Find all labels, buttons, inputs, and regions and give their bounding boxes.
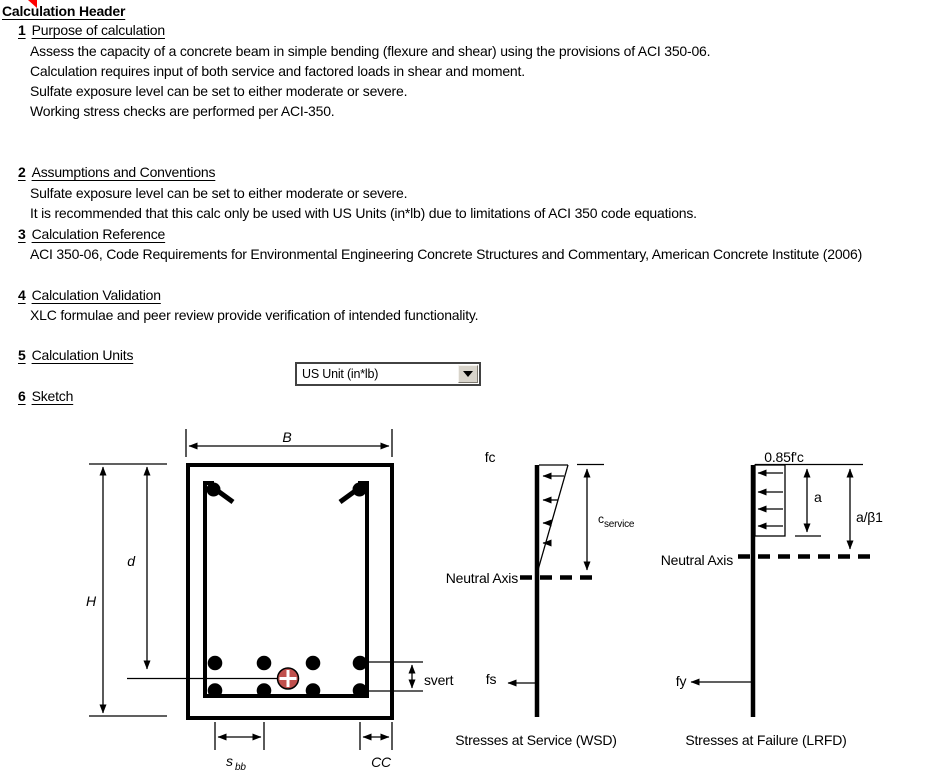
dim-label-sbb-base: s — [226, 753, 233, 769]
caption-wsd: Stresses at Service (WSD) — [455, 732, 616, 748]
top-rebar — [207, 483, 367, 497]
service-stress-diagram — [508, 465, 604, 718]
label-fc: fc — [485, 449, 496, 465]
label-a: a — [814, 489, 822, 505]
chevron-down-icon — [463, 371, 473, 377]
section-6-heading: 6 Sketch — [18, 388, 73, 404]
units-dropdown[interactable]: US Unit (in*lb) — [295, 362, 481, 386]
section-title: Purpose of calculation — [32, 22, 165, 38]
section-1-heading: 1 Purpose of calculation — [18, 22, 165, 38]
section-text-line: ACI 350-06, Code Requirements for Enviro… — [30, 246, 862, 262]
sketch-drawing: B H d svert s bb CC fc c service Neutral… — [0, 420, 927, 774]
units-dropdown-button[interactable] — [458, 365, 478, 383]
section-3-heading: 3 Calculation Reference — [18, 226, 165, 242]
section-5-heading: 5 Calculation Units — [18, 347, 133, 363]
section-number: 4 — [18, 287, 26, 303]
dim-label-sbb-sub: bb — [235, 762, 246, 773]
section-text-line: It is recommended that this calc only be… — [30, 205, 697, 221]
section-text-line: Calculation requires input of both servi… — [30, 63, 525, 79]
dim-label-svert: svert — [424, 672, 454, 688]
section-text-line: Sulfate exposure level can be set to eit… — [30, 83, 407, 99]
section-title: Calculation Validation — [32, 287, 161, 303]
section-text-line: Sulfate exposure level can be set to eit… — [30, 185, 407, 201]
section-number: 5 — [18, 347, 26, 363]
section-title: Assumptions and Conventions — [32, 164, 216, 180]
section-title: Sketch — [32, 388, 74, 404]
section-number: 6 — [18, 388, 26, 404]
label-cservice-sub: service — [604, 519, 635, 530]
section-4-heading: 4 Calculation Validation — [18, 287, 161, 303]
caption-lrfd: Stresses at Failure (LRFD) — [685, 732, 846, 748]
section-text-line: Assess the capacity of a concrete beam i… — [30, 43, 710, 59]
dim-label-b: B — [282, 429, 291, 445]
label-fs: fs — [486, 671, 497, 687]
units-dropdown-value: US Unit (in*lb) — [302, 367, 378, 381]
section-title: Calculation Units — [32, 347, 134, 363]
section-2-heading: 2 Assumptions and Conventions — [18, 164, 215, 180]
centroid-marker — [278, 668, 299, 689]
label-085fc: 0.85f'c — [764, 449, 804, 465]
section-number: 2 — [18, 164, 26, 180]
label-fy: fy — [676, 673, 687, 689]
page-title: Calculation Header — [2, 3, 125, 19]
stirrup — [203, 483, 369, 696]
beam-section — [127, 465, 392, 718]
label-neutral-axis-lrfd: Neutral Axis — [661, 552, 733, 568]
rebar-hooks — [211, 486, 362, 502]
section-number: 1 — [18, 22, 26, 38]
section-title: Calculation Reference — [32, 226, 166, 242]
label-neutral-axis-wsd: Neutral Axis — [446, 570, 518, 586]
failure-stress-diagram — [691, 465, 871, 718]
section-text-line: XLC formulae and peer review provide ver… — [30, 307, 478, 323]
label-a-beta1: a/β1 — [856, 509, 883, 525]
section-number: 3 — [18, 226, 26, 242]
dim-label-h: H — [86, 593, 97, 609]
dim-label-cc: CC — [371, 754, 392, 770]
beam-dimensions — [89, 429, 423, 750]
dim-label-d: d — [127, 553, 136, 569]
section-text-line: Working stress checks are performed per … — [30, 103, 335, 119]
